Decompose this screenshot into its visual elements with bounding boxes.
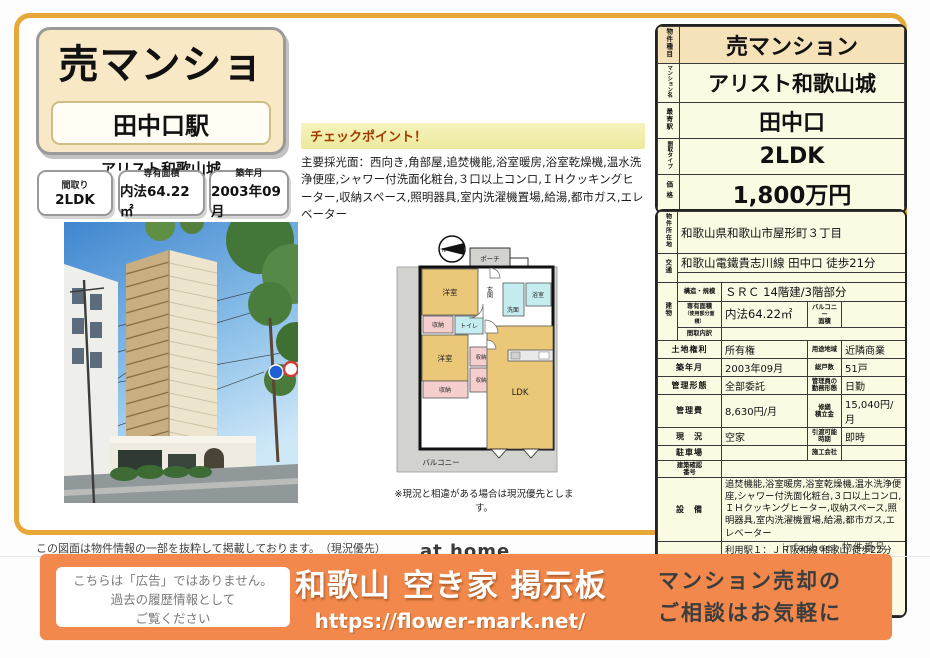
- balcony-label: バルコニー面積: [808, 302, 842, 328]
- notice-line-1: こちらは「広告」ではありません。: [73, 573, 273, 588]
- banner-cta: マンション売却の ご相談はお気軽に: [615, 566, 885, 629]
- table-row: 間取タイプ 2LDK: [658, 139, 905, 175]
- summary-label: 物件種目: [665, 28, 672, 58]
- table-row: 物件所在地 和歌山県和歌山市屋形町３丁目: [658, 212, 906, 254]
- notice-line-2: 過去の履歴情報として: [111, 592, 236, 607]
- summary-value-name: アリスト和歌山城: [680, 64, 905, 103]
- checkpoint-title: チェックポイント！: [301, 123, 645, 149]
- spec-layout-label: 間取り: [61, 178, 88, 191]
- svg-text:洗面: 洗面: [507, 306, 519, 314]
- built-value: 2003年09月: [722, 358, 808, 376]
- table-row: 管理費 8,630円/月 修繕積立金 15,040円/月: [658, 394, 906, 427]
- table-row: 土地権利 所有権 用途地域 近隣商業: [658, 340, 906, 358]
- status-label: 現 況: [658, 427, 722, 445]
- blue-sign-icon: [269, 365, 283, 379]
- equipment-label: 設 備: [658, 478, 722, 541]
- station-name: 田中口駅: [51, 101, 271, 145]
- spec-layout-value: 2LDK: [55, 192, 95, 208]
- table-row: マンション名 アリスト和歌山城: [658, 64, 905, 103]
- land-value: 所有権: [722, 340, 808, 358]
- spec-area-label: 専有面積: [143, 166, 179, 179]
- handover-value: 即時: [842, 427, 906, 445]
- banner-notice-box: こちらは「広告」ではありません。 過去の履歴情報として ご覧ください: [56, 567, 290, 627]
- location-value: 和歌山県和歌山市屋形町３丁目: [678, 212, 906, 254]
- spec-built: 築年月 2003年09月: [209, 170, 289, 216]
- confirm-label: 建築確認番号: [658, 460, 722, 477]
- banner-url-link[interactable]: https://flower-mark.net/: [295, 609, 605, 633]
- fee-value: 8,630円/月: [722, 394, 808, 427]
- table-row: 建築確認番号: [658, 460, 906, 477]
- madori-value: [722, 327, 906, 340]
- area-value: 内法64.22㎡: [722, 302, 808, 328]
- summary-table: 物件種目 売マンション マンション名 アリスト和歌山城 最寄駅 田中口 間取タイ…: [655, 24, 907, 214]
- spec-area-value: 内法64.22㎡: [120, 180, 203, 220]
- parking-label: 駐車場: [658, 445, 722, 460]
- svg-text:収納: 収納: [475, 353, 487, 361]
- zoning-label: 用途地域: [808, 340, 842, 358]
- table-row: 設 備 追焚機能,浴室暖房,浴室乾燥機,温水洗浄便座,シャワー付洗面化粧台,３口…: [658, 478, 906, 541]
- svg-text:洋室: 洋室: [438, 353, 453, 363]
- table-row: 価格 1,800万円: [658, 175, 905, 212]
- constructor-label: 施工会社: [808, 445, 842, 460]
- table-row: 駐車場 施工会社: [658, 445, 906, 460]
- handover-label: 引渡可能時期: [808, 427, 842, 445]
- table-row: 交通 和歌山電鐵貴志川線 田中口 徒歩21分: [658, 254, 906, 273]
- table-row: [658, 273, 906, 283]
- table-row: 築年月 2003年09月 総戸数 51戸: [658, 358, 906, 376]
- spec-layout: 間取り 2LDK: [37, 170, 113, 216]
- svg-text:浴室: 浴室: [532, 291, 544, 299]
- svg-text:トイレ: トイレ: [460, 323, 478, 330]
- north-arrow-icon: N: [439, 236, 465, 262]
- svg-text:玄関: 玄関: [486, 285, 493, 299]
- summary-label: マンション名: [666, 65, 671, 97]
- property-type-box: 売マンション 田中口駅: [36, 27, 286, 155]
- summary-label: 間取タイプ: [666, 141, 672, 169]
- repair-value: 15,040円/月: [842, 394, 906, 427]
- svg-text:収納: 収納: [439, 386, 451, 394]
- summary-label: 最寄駅: [665, 108, 672, 131]
- access-value-2: [678, 273, 906, 283]
- table-row: 建物 構造・規模 ＳＲＣ 14階建/3階部分: [658, 283, 906, 302]
- summary-value-station: 田中口: [680, 103, 905, 139]
- fee-label: 管理費: [658, 394, 722, 427]
- svg-text:LDK: LDK: [512, 388, 529, 398]
- banner-title: 和歌山 空き家 掲示板: [295, 560, 605, 605]
- structure-value: ＳＲＣ 14階建/3階部分: [722, 283, 906, 302]
- table-row: 専有面積 （使用部分面積） 内法64.22㎡ バルコニー面積: [658, 302, 906, 328]
- svg-text:バルコニー: バルコニー: [422, 458, 459, 467]
- spec-area: 専有面積 内法64.22㎡: [118, 170, 205, 216]
- area-label: 専有面積 （使用部分面積）: [678, 302, 722, 328]
- mgmt-type-label: 管理形態: [658, 376, 722, 394]
- equipment-value: 追焚機能,浴室暖房,浴室乾燥機,温水洗浄便座,シャワー付洗面化粧台,３口以上コン…: [722, 478, 906, 541]
- svg-text:ポーチ: ポーチ: [480, 255, 500, 263]
- summary-value-type: 売マンション: [680, 27, 905, 64]
- land-label: 土地権利: [658, 340, 722, 358]
- balcony-value: [842, 302, 906, 328]
- checkpoint-body: 主要採光面：西向き,角部屋,追焚機能,浴室暖房,浴室乾燥機,温水洗浄便座,シャワ…: [301, 154, 645, 223]
- svg-text:洋室: 洋室: [443, 287, 458, 297]
- table-row: 物件種目 売マンション: [658, 27, 905, 64]
- built-label: 築年月: [658, 358, 722, 376]
- building-photo-art: [64, 222, 298, 503]
- svg-text:収納: 収納: [475, 376, 487, 384]
- summary-value-price: 1,800万円: [680, 175, 905, 212]
- cta-line-1: マンション売却の: [658, 569, 842, 593]
- table-row: 間取内訳: [658, 327, 906, 340]
- spec-built-value: 2003年09月: [211, 180, 287, 220]
- units-label: 総戸数: [808, 358, 842, 376]
- floor-plan-art: N ポーチ MB 洋室 玄関 洗面 浴室 収納 トイレ 洋室 収納 収納 収納 …: [393, 234, 565, 482]
- location-label: 物件所在地: [665, 213, 671, 248]
- constructor-value: [842, 445, 906, 460]
- madori-label: 間取内訳: [678, 327, 722, 340]
- checkpoint-section: チェックポイント！ 主要採光面：西向き,角部屋,追焚機能,浴室暖房,浴室乾燥機,…: [301, 123, 645, 223]
- manager-label: 管理員の勤務形態: [808, 376, 842, 394]
- svg-text:N: N: [442, 248, 446, 254]
- repair-label: 修繕積立金: [808, 394, 842, 427]
- notice-line-3: ご覧ください: [135, 611, 210, 626]
- access-value: 和歌山電鐵貴志川線 田中口 徒歩21分: [678, 254, 906, 273]
- summary-value-layout: 2LDK: [680, 139, 905, 175]
- table-row: 現 況 空家 引渡可能時期 即時: [658, 427, 906, 445]
- confirm-value: [722, 460, 906, 477]
- cta-line-2: ご相談はお気軽に: [658, 601, 842, 625]
- summary-label: 価格: [665, 181, 672, 202]
- access-label: 交通: [664, 259, 671, 274]
- mgmt-type-value: 全部委託: [722, 376, 808, 394]
- floor-plan-caption: ※現況と相違がある場合は現況優先とします。: [391, 486, 577, 514]
- status-value: 空家: [722, 427, 808, 445]
- table-row: 管理形態 全部委託 管理員の勤務形態 日勤: [658, 376, 906, 394]
- bottom-banner: こちらは「広告」ではありません。 過去の履歴情報として ご覧ください 和歌山 空…: [40, 554, 892, 640]
- speed-sign-icon: [284, 362, 298, 376]
- spec-built-label: 築年月: [235, 166, 262, 179]
- floor-plan: N ポーチ MB 洋室 玄関 洗面 浴室 収納 トイレ 洋室 収納 収納 収納 …: [393, 234, 565, 482]
- zoning-value: 近隣商業: [842, 340, 906, 358]
- table-row: 最寄駅 田中口: [658, 103, 905, 139]
- banner-center: 和歌山 空き家 掲示板 https://flower-mark.net/: [295, 560, 605, 633]
- infosheet-label: infosheet 物件番号: [782, 539, 886, 554]
- spec-row: 間取り 2LDK 専有面積 内法64.22㎡ 築年月 2003年09月: [37, 170, 289, 216]
- structure-label: 構造・規模: [678, 283, 722, 302]
- units-value: 51戸: [842, 358, 906, 376]
- manager-value: 日勤: [842, 376, 906, 394]
- building-section-label: 建物: [664, 302, 671, 317]
- building-photo: [64, 222, 298, 503]
- svg-text:収納: 収納: [432, 321, 444, 329]
- parking-value: [722, 445, 808, 460]
